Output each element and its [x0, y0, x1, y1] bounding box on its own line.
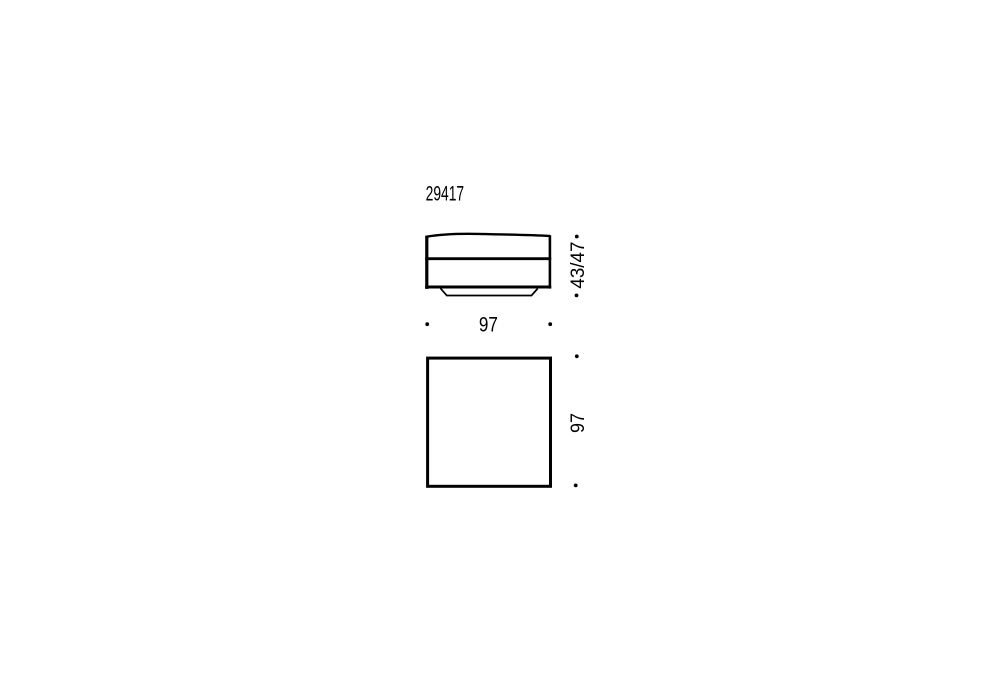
svg-text:97: 97: [568, 413, 589, 433]
svg-text:29417: 29417: [426, 181, 465, 206]
svg-text:97: 97: [479, 314, 498, 337]
svg-text:43/47: 43/47: [567, 242, 589, 289]
